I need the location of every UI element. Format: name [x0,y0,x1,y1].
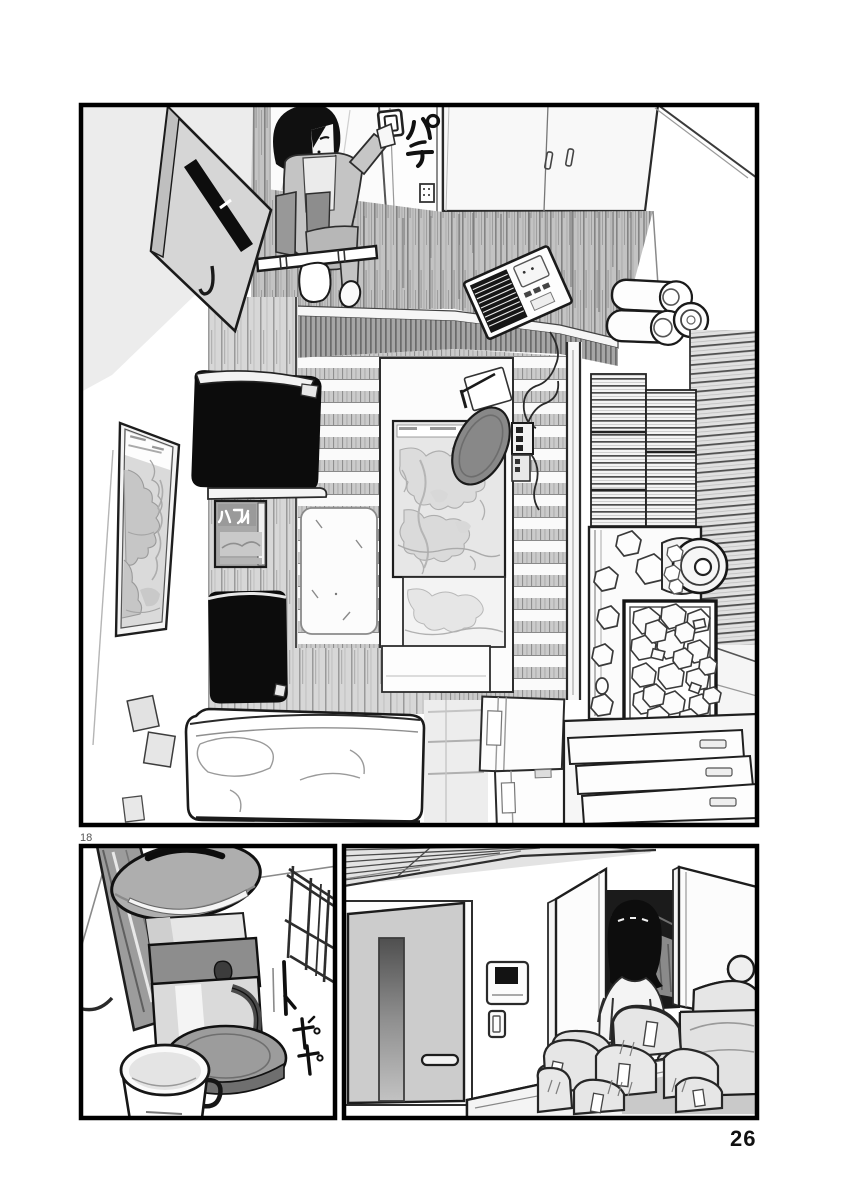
svg-text:26: 26 [730,1126,756,1151]
svg-text:18: 18 [80,832,92,844]
